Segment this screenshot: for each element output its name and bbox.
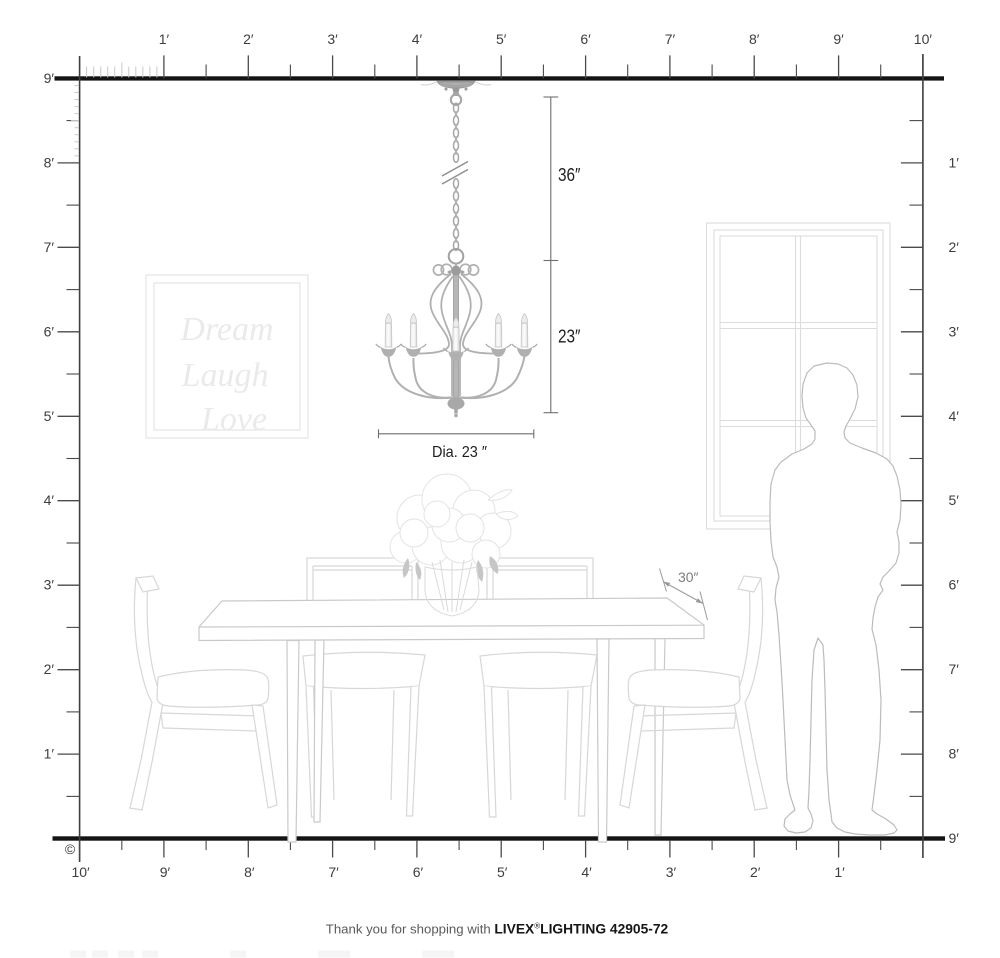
- svg-text:1′: 1′: [949, 154, 960, 170]
- svg-text:Dia. 23 ″: Dia. 23 ″: [432, 444, 487, 461]
- svg-text:9′: 9′: [44, 70, 55, 86]
- svg-text:8′: 8′: [949, 746, 960, 762]
- svg-text:8′: 8′: [44, 154, 55, 170]
- svg-text:30″: 30″: [678, 570, 699, 585]
- svg-text:9′: 9′: [160, 864, 171, 880]
- svg-text:9′: 9′: [949, 830, 960, 846]
- svg-text:Dream: Dream: [179, 311, 273, 348]
- svg-text:7′: 7′: [665, 31, 676, 47]
- svg-text:9′: 9′: [833, 31, 844, 47]
- svg-text:5′: 5′: [497, 864, 508, 880]
- svg-text:6′: 6′: [949, 577, 960, 593]
- svg-text:©: ©: [65, 841, 76, 857]
- svg-text:4′: 4′: [581, 864, 592, 880]
- svg-text:Love: Love: [200, 401, 267, 438]
- svg-text:23″: 23″: [558, 327, 581, 347]
- svg-text:5′: 5′: [44, 408, 55, 424]
- svg-text:8′: 8′: [244, 864, 255, 880]
- svg-text:10′: 10′: [914, 31, 933, 47]
- svg-text:10′: 10′: [71, 864, 90, 880]
- svg-text:1′: 1′: [159, 31, 170, 47]
- svg-text:5′: 5′: [496, 31, 507, 47]
- svg-text:6′: 6′: [44, 323, 55, 339]
- svg-text:2′: 2′: [243, 31, 254, 47]
- svg-text:7′: 7′: [44, 239, 55, 255]
- svg-text:Laugh: Laugh: [181, 357, 269, 394]
- svg-text:36″: 36″: [558, 165, 581, 185]
- svg-text:1′: 1′: [834, 864, 845, 880]
- svg-text:3′: 3′: [949, 323, 960, 339]
- svg-text:Thank you for shopping with LI: Thank you for shopping with LIVEX®LIGHTI…: [326, 922, 669, 937]
- svg-text:3′: 3′: [327, 31, 338, 47]
- svg-text:8′: 8′: [749, 31, 760, 47]
- svg-text:4′: 4′: [949, 408, 960, 424]
- svg-text:4′: 4′: [44, 492, 55, 508]
- svg-text:7′: 7′: [328, 864, 339, 880]
- svg-text:2′: 2′: [949, 239, 960, 255]
- svg-text:3′: 3′: [44, 577, 55, 593]
- svg-text:3′: 3′: [666, 864, 677, 880]
- svg-text:1′: 1′: [44, 746, 55, 762]
- svg-text:2′: 2′: [44, 661, 55, 677]
- svg-text:5′: 5′: [949, 492, 960, 508]
- svg-text:6′: 6′: [580, 31, 591, 47]
- svg-text:6′: 6′: [413, 864, 424, 880]
- svg-text:4′: 4′: [412, 31, 423, 47]
- svg-text:2′: 2′: [750, 864, 761, 880]
- svg-text:7′: 7′: [949, 661, 960, 677]
